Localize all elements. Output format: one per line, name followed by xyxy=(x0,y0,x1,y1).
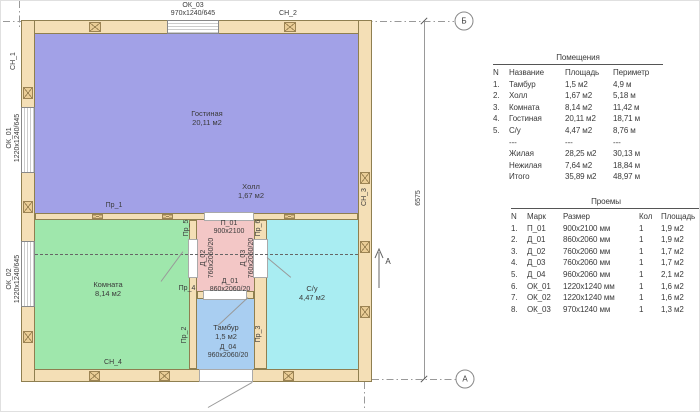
table-row: 2.Холл1,67 м25,18 м xyxy=(493,90,663,102)
stud-mark xyxy=(284,214,295,219)
section-arrow xyxy=(369,243,393,293)
table-row: 1.П_01900х2100 мм11,9 м2 xyxy=(511,223,700,235)
label-pr3: Пр_3 xyxy=(255,326,263,343)
label-pr2: Пр_2 xyxy=(181,327,189,344)
table-row: 6.ОК_011220х1240 мм11,6 м2 xyxy=(511,281,700,293)
axis-line-bottom xyxy=(364,382,365,412)
dimension-value: 6575 xyxy=(415,190,423,206)
section-line xyxy=(35,254,358,255)
stud-mark xyxy=(92,214,103,219)
openings-table-title: Проемы xyxy=(511,197,700,209)
room-hall-area: 1,67 м2 xyxy=(238,191,264,200)
stud-mark xyxy=(284,22,296,32)
door-d04-size: 960х2060/20 xyxy=(208,352,248,360)
column-header: N xyxy=(511,211,527,223)
label-ok01-size: 1220х1240/645 xyxy=(14,114,22,162)
door-d03-mark: Д_03 xyxy=(240,238,248,278)
column-header: Кол xyxy=(639,211,661,223)
label-ok02-mark: ОК_02 xyxy=(6,255,14,303)
label-room-living: Гостиная 20,11 м2 xyxy=(191,109,222,127)
label-door-p01: П_01 900х2100 xyxy=(214,220,245,236)
label-ok03-size: 970х1240/645 xyxy=(171,10,215,18)
room-hall-name: Холл xyxy=(238,182,264,191)
table-row: 2.Д_01860х2060 мм11,9 м2 xyxy=(511,234,700,246)
label-ok03-mark: ОК_03 xyxy=(171,2,215,10)
table-row: 4.Д_03760х2060 мм11,7 м2 xyxy=(511,257,700,269)
door-d04-mark: Д_04 xyxy=(208,344,248,352)
label-door-d04: Д_04 960х2060/20 xyxy=(208,344,248,360)
stud-mark xyxy=(360,172,370,184)
section-arrow-label: А xyxy=(385,258,390,266)
window-ok02[interactable] xyxy=(21,241,35,307)
door-d02-size: 760х2060/20 xyxy=(208,238,216,278)
column-header: Периметр xyxy=(613,67,663,79)
floor-plan-canvas: 6575 Б А А ОК_03 970х1240/645 СН_2 СН_1 … xyxy=(0,0,700,412)
table-row: 4.Гостиная20,11 м218,71 м xyxy=(493,113,663,125)
label-ok01: ОК_01 1220х1240/645 xyxy=(6,114,22,162)
label-room-bedroom: Комната 8,14 м2 xyxy=(93,280,122,298)
axis-marker-b[interactable]: Б xyxy=(455,12,474,31)
axis-line-a xyxy=(372,379,456,380)
openings-table-header-row: NМаркРазмерКолПлощадь xyxy=(511,211,700,223)
stud-mark xyxy=(23,87,33,99)
label-sn1: СН_1 xyxy=(10,52,18,70)
wall-interior-horizontal[interactable] xyxy=(35,213,358,220)
stud-mark xyxy=(89,371,100,381)
label-ok02: ОК_02 1220х1240/645 xyxy=(6,255,22,303)
label-ok03: ОК_03 970х1240/645 xyxy=(171,2,215,18)
room-living-name: Гостиная xyxy=(191,109,222,118)
column-header: Марк xyxy=(527,211,563,223)
door-d03-size: 760х2060/20 xyxy=(248,238,256,278)
wall-bottom[interactable] xyxy=(21,369,372,382)
table-row: 7.ОК_021220х1240 мм11,6 м2 xyxy=(511,292,700,304)
label-pr6: Пр_6 xyxy=(255,220,263,237)
label-door-d03: Д_03 760х2060/20 xyxy=(240,238,256,278)
openings-table: Проемы NМаркРазмерКолПлощадь 1.П_01900х2… xyxy=(511,197,700,315)
label-sn3: СН_3 xyxy=(361,188,369,206)
label-pr5: Пр_5 xyxy=(183,220,191,237)
rooms-table-header-row: NНазваниеПлощадьПериметр xyxy=(493,67,663,79)
label-sn4: СН_4 xyxy=(104,359,122,367)
opening-d02[interactable] xyxy=(188,239,198,278)
label-pr1: Пр_1 xyxy=(106,202,123,210)
room-tambour-name: Тамбур xyxy=(213,323,238,332)
room-living-area: 20,11 м2 xyxy=(191,118,222,127)
label-door-d01: Д_01 860х2060/20 xyxy=(210,278,250,294)
stud-mark xyxy=(23,331,33,343)
axis-marker-a[interactable]: А xyxy=(456,370,475,389)
room-wc-name: С/у xyxy=(299,284,325,293)
stud-mark xyxy=(23,201,33,213)
table-row: --------- xyxy=(493,137,663,149)
door-p01-mark: П_01 xyxy=(214,220,245,228)
axis-line-left-top xyxy=(19,1,20,27)
label-door-d02: Д_02 760х2060/20 xyxy=(200,238,216,278)
table-row: 5.С/у4,47 м28,76 м xyxy=(493,125,663,137)
dimension-line xyxy=(424,21,425,379)
table-row: Жилая28,25 м230,13 м xyxy=(493,148,663,160)
room-tambour-area: 1,5 м2 xyxy=(213,332,238,341)
column-header: Площадь xyxy=(565,67,613,79)
label-room-wc: С/у 4,47 м2 xyxy=(299,284,325,302)
door-d01-mark: Д_01 xyxy=(210,278,250,286)
label-pr4: Пр_4 xyxy=(179,285,196,293)
stud-mark xyxy=(159,371,170,381)
column-header: N xyxy=(493,67,509,79)
stud-mark xyxy=(162,214,173,219)
label-ok01-mark: ОК_01 xyxy=(6,114,14,162)
stud-mark xyxy=(360,306,370,318)
column-header: Название xyxy=(509,67,565,79)
label-room-tambour: Тамбур 1,5 м2 xyxy=(213,323,238,341)
rooms-table: Помещения NНазваниеПлощадьПериметр 1.Там… xyxy=(493,53,663,183)
label-room-hall: Холл 1,67 м2 xyxy=(238,182,264,200)
table-row: 1.Тамбур1,5 м24,9 м xyxy=(493,79,663,91)
door-d01-size: 860х2060/20 xyxy=(210,286,250,294)
rooms-table-grid: NНазваниеПлощадьПериметр 1.Тамбур1,5 м24… xyxy=(493,67,663,183)
openings-table-grid: NМаркРазмерКолПлощадь 1.П_01900х2100 мм1… xyxy=(511,211,700,315)
stud-mark xyxy=(89,22,101,32)
rooms-table-title: Помещения xyxy=(493,53,663,65)
door-p01-size: 900х2100 xyxy=(214,228,245,236)
window-ok01[interactable] xyxy=(21,107,35,173)
window-ok03[interactable] xyxy=(167,20,219,34)
label-ok02-size: 1220х1240/645 xyxy=(14,255,22,303)
opening-d04[interactable] xyxy=(199,369,253,382)
table-row: 3.Комната8,14 м211,42 м xyxy=(493,102,663,114)
door-swing-d04 xyxy=(208,382,253,408)
table-row: 3.Д_02760х2060 мм11,7 м2 xyxy=(511,246,700,258)
room-bedroom-area: 8,14 м2 xyxy=(93,289,122,298)
column-header: Размер xyxy=(563,211,639,223)
table-row: 5.Д_04960х2060 мм12,1 м2 xyxy=(511,269,700,281)
room-bedroom-name: Комната xyxy=(93,280,122,289)
stud-mark xyxy=(283,371,294,381)
table-row: Итого35,89 м248,97 м xyxy=(493,171,663,183)
room-wc-area: 4,47 м2 xyxy=(299,293,325,302)
door-d02-mark: Д_02 xyxy=(200,238,208,278)
table-row: Нежилая7,64 м218,84 м xyxy=(493,160,663,172)
label-sn2: СН_2 xyxy=(279,10,297,18)
table-row: 8.ОК_03970х1240 мм11,3 м2 xyxy=(511,304,700,316)
column-header: Площадь xyxy=(661,211,700,223)
